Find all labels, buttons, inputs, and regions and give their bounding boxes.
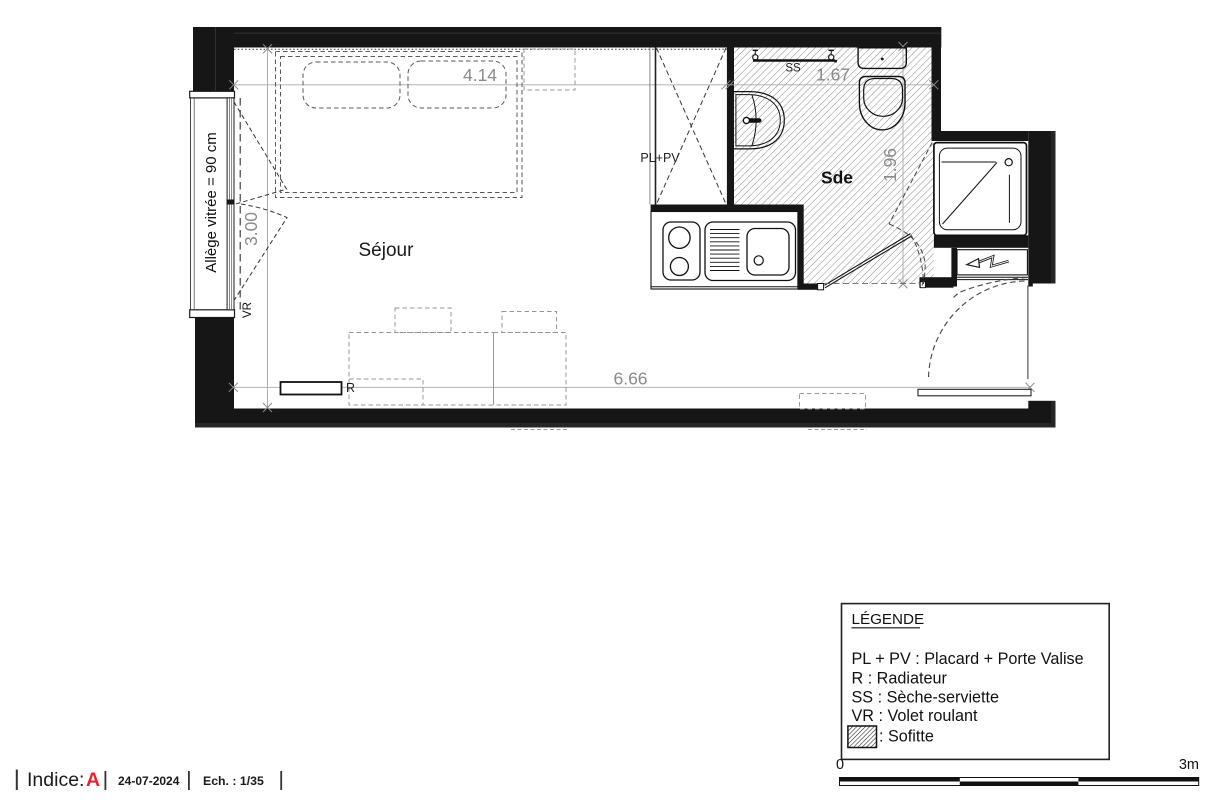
svg-text:A: A [86, 769, 100, 791]
svg-text:Sde: Sde [821, 168, 853, 188]
svg-text:4.14: 4.14 [463, 65, 497, 85]
svg-text:R : Radiateur: R : Radiateur [852, 669, 948, 687]
svg-text:Séjour: Séjour [359, 240, 415, 261]
svg-text:PL+PV: PL+PV [640, 151, 680, 165]
svg-text:6.66: 6.66 [613, 369, 647, 389]
svg-text:1.67: 1.67 [816, 65, 850, 85]
svg-text:SS: SS [785, 63, 801, 75]
svg-text:: Sofitte: : Sofitte [879, 728, 934, 746]
svg-text:3m: 3m [1179, 757, 1199, 773]
svg-text:PL + PV : Placard + Porte Vali: PL + PV : Placard + Porte Valise [852, 650, 1084, 668]
svg-text:SS : Sèche-serviette: SS : Sèche-serviette [852, 689, 1000, 707]
svg-text:3.00: 3.00 [241, 212, 261, 246]
svg-text:R: R [346, 381, 355, 395]
svg-text:Ech. : 1/35: Ech. : 1/35 [203, 774, 264, 788]
svg-text:Allège vitrée = 90 cm: Allège vitrée = 90 cm [203, 132, 220, 273]
svg-text:0: 0 [836, 757, 844, 773]
svg-text:LÉGENDE: LÉGENDE [852, 611, 925, 628]
svg-text:VR: VR [242, 302, 254, 318]
svg-text:24-07-2024: 24-07-2024 [118, 774, 180, 788]
svg-text:VR : Volet roulant: VR : Volet roulant [852, 707, 978, 725]
svg-text:1.96: 1.96 [880, 148, 900, 182]
svg-text:Indice:: Indice: [27, 769, 84, 791]
